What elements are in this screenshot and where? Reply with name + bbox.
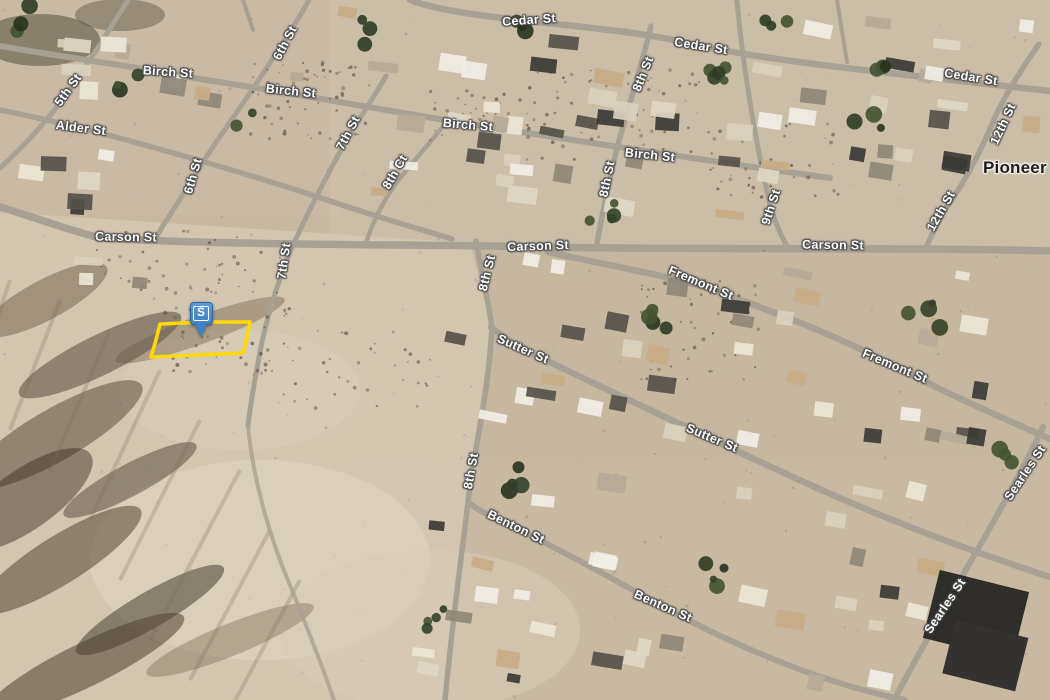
satellite-imagery [0,0,1050,700]
marker-letter: S [193,306,210,322]
satellite-map[interactable]: Cedar StCedar StCedar StBirch StBirch St… [0,0,1050,700]
marker-pin-head: S [190,302,213,325]
property-marker-pin[interactable]: S [189,302,213,337]
marker-pointer [195,324,207,337]
